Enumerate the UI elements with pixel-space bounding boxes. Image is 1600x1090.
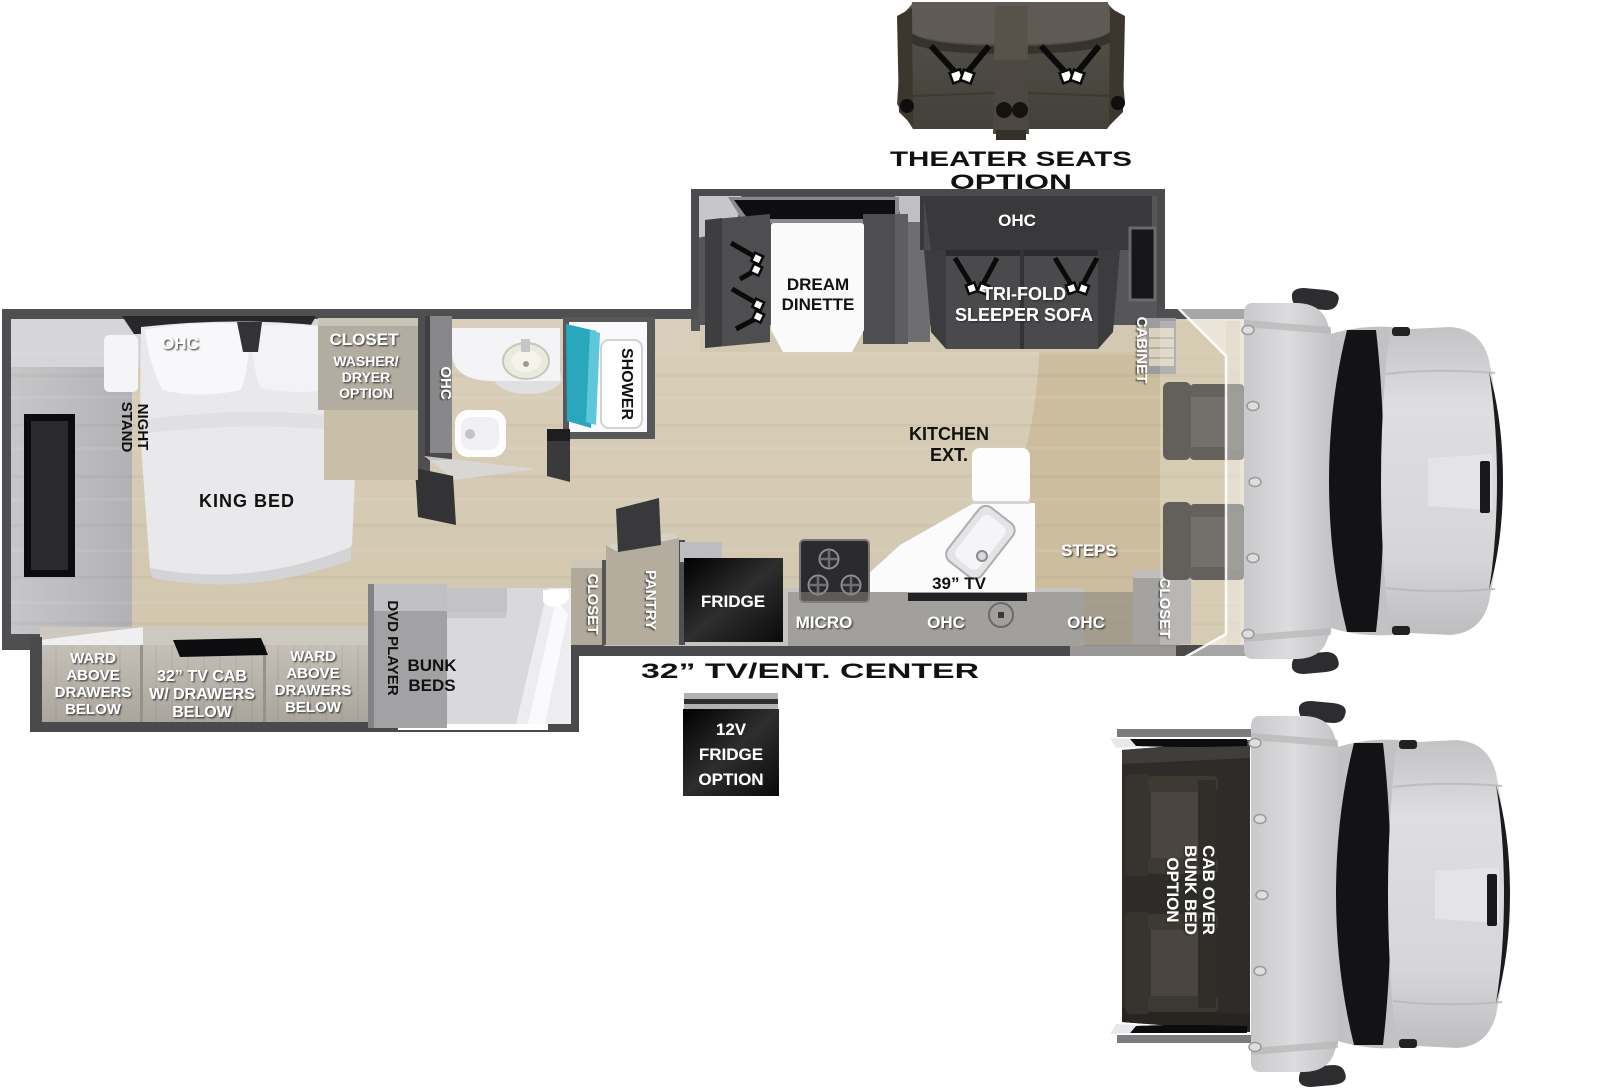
svg-text:BELOW: BELOW: [285, 699, 342, 716]
svg-text:OHC: OHC: [998, 211, 1036, 230]
svg-text:KING BED: KING BED: [199, 491, 295, 511]
svg-text:PANTRY: PANTRY: [642, 570, 659, 630]
svg-text:32” TV/ENT. CENTER: 32” TV/ENT. CENTER: [641, 660, 979, 683]
svg-text:39” TV: 39” TV: [932, 574, 987, 593]
svg-text:BELOW: BELOW: [172, 704, 232, 721]
svg-text:OHC: OHC: [1067, 613, 1105, 632]
svg-text:DRAWERS: DRAWERS: [275, 682, 352, 699]
svg-text:FRIDGE: FRIDGE: [701, 592, 765, 611]
svg-text:WASHER/: WASHER/: [333, 353, 398, 369]
svg-text:MICRO: MICRO: [796, 613, 853, 632]
svg-text:32” TV CAB: 32” TV CAB: [157, 668, 247, 685]
svg-text:BELOW: BELOW: [65, 701, 122, 718]
svg-text:DREAM: DREAM: [787, 275, 849, 294]
svg-text:ABOVE: ABOVE: [286, 665, 339, 682]
svg-text:CLOSET: CLOSET: [584, 574, 601, 635]
svg-text:STEPS: STEPS: [1061, 541, 1117, 560]
svg-text:CLOSET: CLOSET: [330, 330, 400, 349]
svg-text:OPTION: OPTION: [950, 171, 1072, 194]
svg-text:12V: 12V: [716, 720, 747, 739]
svg-text:OPTION: OPTION: [1163, 857, 1182, 922]
svg-text:DRYER: DRYER: [342, 369, 391, 385]
svg-text:W/ DRAWERS: W/ DRAWERS: [149, 686, 255, 703]
svg-text:STAND: STAND: [118, 402, 135, 453]
svg-text:EXT.: EXT.: [930, 445, 968, 465]
svg-text:NIGHT: NIGHT: [134, 404, 151, 451]
svg-text:BUNK BED: BUNK BED: [1181, 845, 1200, 935]
svg-text:CAB OVER: CAB OVER: [1199, 845, 1218, 935]
svg-text:TRI-FOLD: TRI-FOLD: [982, 284, 1066, 304]
svg-text:ABOVE: ABOVE: [66, 667, 119, 684]
svg-text:OPTION: OPTION: [339, 385, 393, 401]
svg-text:DINETTE: DINETTE: [782, 295, 855, 314]
svg-text:BEDS: BEDS: [408, 676, 455, 695]
svg-text:FRIDGE: FRIDGE: [699, 745, 763, 764]
svg-text:OHC: OHC: [437, 366, 454, 400]
svg-text:CABINET: CABINET: [1133, 317, 1150, 384]
svg-text:SLEEPER SOFA: SLEEPER SOFA: [955, 305, 1093, 325]
svg-text:DRAWERS: DRAWERS: [55, 684, 132, 701]
svg-text:WARD: WARD: [70, 650, 116, 667]
svg-text:SHOWER: SHOWER: [618, 348, 635, 420]
svg-text:THEATER SEATS: THEATER SEATS: [890, 148, 1132, 171]
svg-text:WARD: WARD: [290, 648, 336, 665]
svg-text:OHC: OHC: [161, 334, 199, 353]
svg-text:KITCHEN: KITCHEN: [909, 424, 989, 444]
svg-text:DVD PLAYER: DVD PLAYER: [384, 600, 401, 695]
svg-text:BUNK: BUNK: [407, 656, 457, 675]
svg-text:OPTION: OPTION: [698, 770, 763, 789]
svg-text:OHC: OHC: [927, 613, 965, 632]
